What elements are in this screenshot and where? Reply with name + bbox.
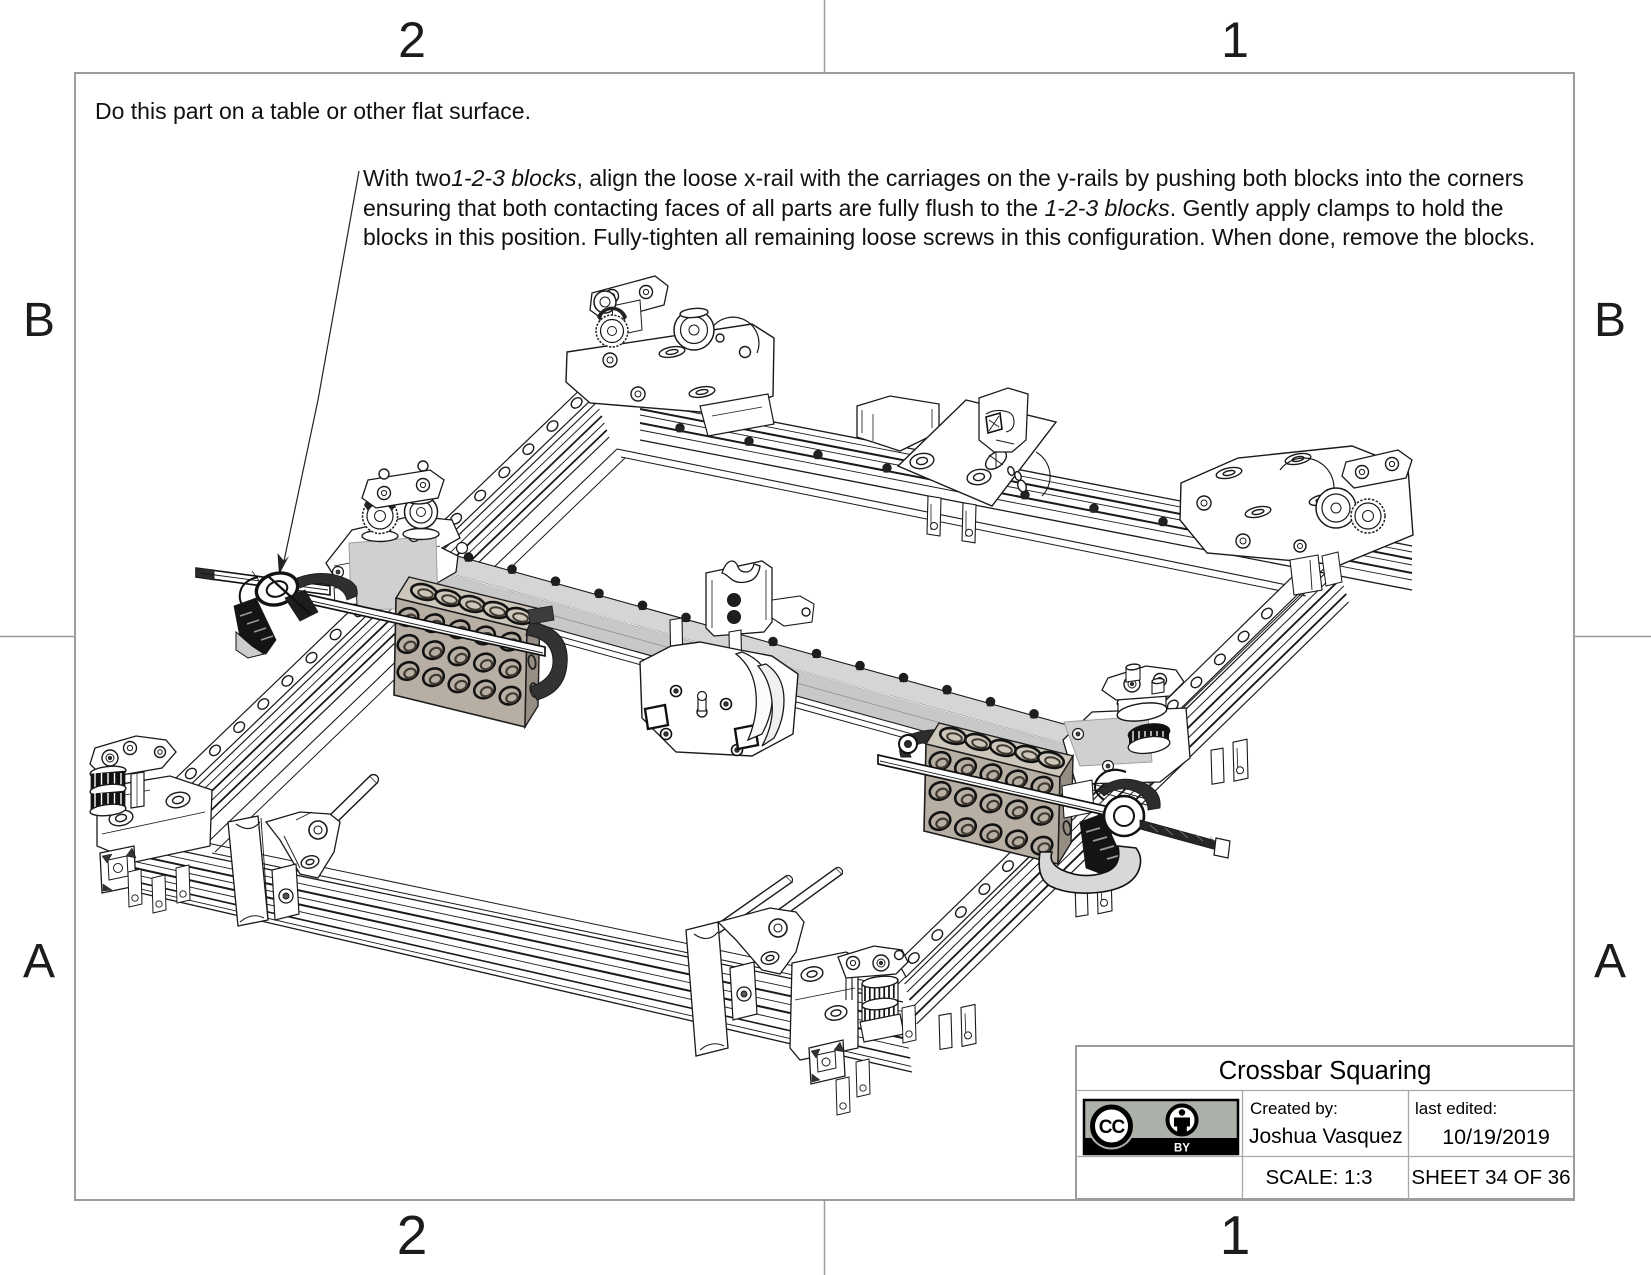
- svg-text:A: A: [23, 935, 55, 988]
- svg-text:A: A: [1594, 935, 1626, 988]
- svg-text:last edited:: last edited:: [1415, 1099, 1497, 1118]
- svg-text:B: B: [23, 294, 55, 347]
- svg-text:Created by:: Created by:: [1250, 1099, 1338, 1118]
- svg-text:B: B: [1594, 294, 1626, 347]
- svg-text:blocks in this position. Fully: blocks in this position. Fully-tighten a…: [363, 224, 1535, 250]
- svg-text:ensuring that both contacting: ensuring that both contacting faces of a…: [363, 195, 1503, 221]
- svg-text:2: 2: [397, 1204, 428, 1266]
- svg-text:CC: CC: [1099, 1117, 1126, 1138]
- svg-text:SHEET 34 OF 36: SHEET 34 OF 36: [1411, 1166, 1570, 1189]
- svg-text:1: 1: [1220, 1204, 1251, 1266]
- svg-text:Crossbar Squaring: Crossbar Squaring: [1219, 1057, 1432, 1085]
- svg-text:1: 1: [1221, 12, 1249, 68]
- svg-text:With two1-2-3 blocks, align th: With two1-2-3 blocks, align the loose x-…: [363, 165, 1524, 191]
- svg-text:SCALE: 1:3: SCALE: 1:3: [1265, 1166, 1372, 1189]
- svg-text:2: 2: [398, 12, 426, 68]
- svg-text:Do this part on a table or oth: Do this part on a table or other flat su…: [95, 98, 531, 124]
- svg-text:Joshua Vasquez: Joshua Vasquez: [1249, 1125, 1403, 1148]
- svg-text:10/19/2019: 10/19/2019: [1442, 1125, 1550, 1149]
- svg-text:BY: BY: [1174, 1143, 1190, 1155]
